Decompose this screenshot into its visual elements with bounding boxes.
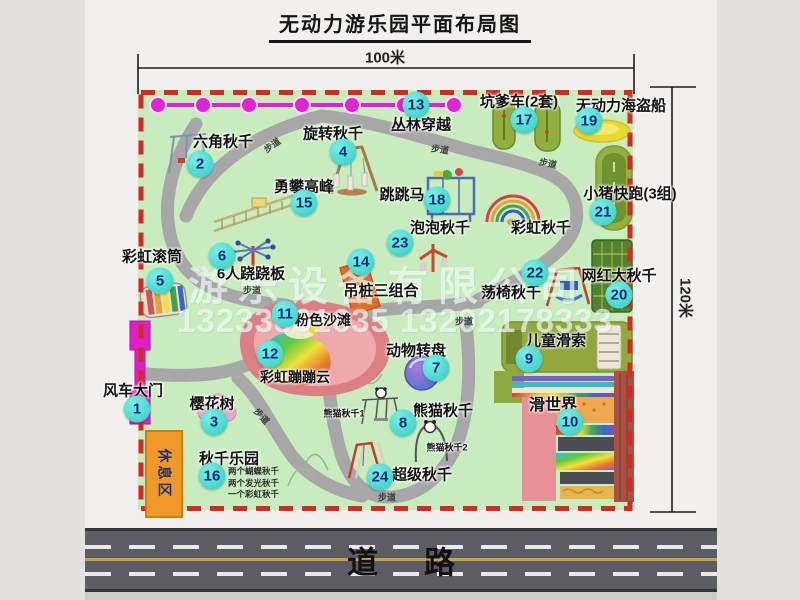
marker-5: 5 xyxy=(147,268,174,295)
walkway-label: 步道 xyxy=(243,284,261,297)
marker-11: 11 xyxy=(272,301,299,328)
marker-12: 12 xyxy=(257,341,284,368)
marker-16: 16 xyxy=(199,463,226,490)
rest-area-box: 休息区 xyxy=(145,430,183,518)
label-hex-swing: 六角秋千 xyxy=(193,131,253,152)
marker-3: 3 xyxy=(201,409,228,436)
marker-6: 6 xyxy=(209,243,236,270)
label-jumping-horse: 跳跳马 xyxy=(379,184,424,205)
label-super-swing: 超级秋千 xyxy=(392,464,452,485)
label-panda-swing-1: 熊猫秋千1 xyxy=(323,407,364,420)
marker-2: 2 xyxy=(187,151,214,178)
swing-park-item: 两个发光秋千 xyxy=(228,478,279,490)
page-title: 无动力游乐园平面布局图 xyxy=(269,8,531,43)
road: 道路 xyxy=(85,528,717,592)
label-rotary-swing: 旋转秋千 xyxy=(303,123,363,144)
marker-9: 9 xyxy=(516,346,543,373)
screenshot-stage: 无动力游乐园平面布局图 100米 120米 xyxy=(0,0,800,600)
swing-park-item: 两个蝴蝶秋千 xyxy=(228,466,279,478)
label-bounce-cloud: 彩虹蹦蹦云 xyxy=(260,367,330,387)
marker-10: 10 xyxy=(557,409,584,436)
marker-20: 20 xyxy=(606,282,633,309)
marker-13: 13 xyxy=(403,92,430,119)
label-panda-swing: 熊猫秋千 xyxy=(413,400,473,421)
marker-21: 21 xyxy=(590,199,617,226)
marker-17: 17 xyxy=(511,107,538,134)
label-rainbow-drum: 彩虹滚筒 xyxy=(122,246,182,267)
label-pile-combo: 吊桩三组合 xyxy=(343,280,418,301)
label-pink-beach: 粉色沙滩 xyxy=(295,310,351,330)
marker-4: 4 xyxy=(330,139,357,166)
swing-park-item: 一个彩虹秋千 xyxy=(228,489,279,501)
marker-1: 1 xyxy=(124,396,151,423)
marker-18: 18 xyxy=(424,187,451,214)
marker-19: 19 xyxy=(576,108,603,135)
walkway-label: 步道 xyxy=(430,141,450,156)
label-bubble-swing: 泡泡秋千 xyxy=(410,217,470,238)
rest-area-label: 休息区 xyxy=(154,449,174,500)
marker-8: 8 xyxy=(390,410,417,437)
label-rainbow-swing: 彩虹秋千 xyxy=(511,217,571,238)
swing-park-item-list: 两个蝴蝶秋千 两个发光秋千 一个彩虹秋千 xyxy=(228,466,279,501)
marker-22: 22 xyxy=(522,260,549,287)
marker-23: 23 xyxy=(387,230,414,257)
walkway-label: 步道 xyxy=(378,491,396,504)
walkway-label: 步道 xyxy=(455,315,473,328)
marker-14: 14 xyxy=(348,249,375,276)
label-panda-swing-2: 熊猫秋千2 xyxy=(426,441,467,454)
marker-7: 7 xyxy=(423,355,450,382)
marker-24: 24 xyxy=(367,464,394,491)
width-dimension-label: 100米 xyxy=(365,47,405,68)
marker-15: 15 xyxy=(291,190,318,217)
height-dimension-label: 120米 xyxy=(676,278,697,318)
road-label: 道路 xyxy=(301,538,501,583)
